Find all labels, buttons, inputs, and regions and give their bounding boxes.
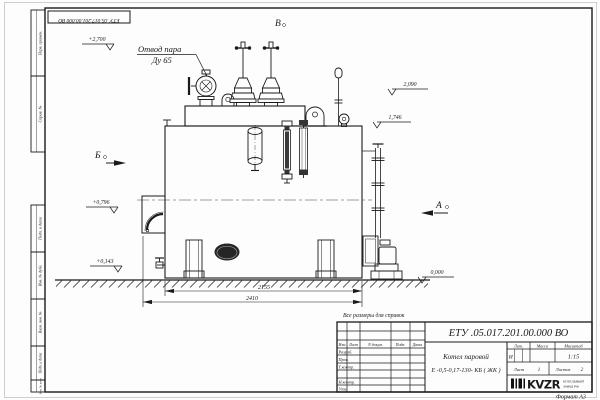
tb-sheet-label: Лист <box>513 367 525 372</box>
eyebolt-ring <box>339 114 349 127</box>
tb-row-tkontr: Т.контр. <box>339 365 355 370</box>
drain-valve-left <box>155 258 165 268</box>
tb-row-razrab: Разраб. <box>338 350 353 355</box>
margin-columns: Перв. примен. Справ. № Подп. и дата Инв.… <box>31 10 45 395</box>
elevation-2700: +2,700 <box>89 37 106 43</box>
tb-row-prov: Пров. <box>338 357 349 362</box>
margin-label-podp-data-bottom: Подп. и дата <box>39 353 43 375</box>
blowdown-standpipe <box>362 144 385 238</box>
kvzr-logo: KVZR КОТЕЛЬНЫЙ ЗАВОД РФ <box>511 378 584 392</box>
elevation-0000: 0,000 <box>430 270 443 276</box>
steam-outlet-valve <box>189 70 216 106</box>
format-note: Формат А3 <box>556 395 586 400</box>
gauge-glass-column <box>299 120 308 178</box>
kvzr-logo-text: KVZR <box>527 378 561 392</box>
elevation-0796: +0,796 <box>93 200 110 206</box>
boiler-drawing: Отвод пара Ду 65 +2,700 2,090 1,746 +0,7… <box>55 19 454 319</box>
callout-line1: Отвод пара <box>138 44 181 54</box>
reference-note: Все размеры для справок <box>343 312 405 319</box>
view-index-mark-left <box>104 156 107 159</box>
boiler-body <box>163 106 362 278</box>
tb-row-nkontr: Н.контр. <box>338 380 356 385</box>
feed-pump-unit <box>363 236 402 279</box>
support-leg-rear <box>316 240 336 278</box>
burner-unit <box>142 196 165 233</box>
view-letter-top: В <box>275 19 281 29</box>
tb-col-podp: Подп. <box>395 342 406 347</box>
view-letter-right: А <box>435 201 442 211</box>
view-index-mark-right <box>446 206 449 209</box>
tb-doc-number: ЕТУ .05.017.201.00.000 ВО <box>448 328 569 339</box>
margin-label-podp-data-top: Подп. и дата <box>38 217 43 241</box>
tb-col-izm: Изм <box>338 342 346 347</box>
margin-label-inv-podl: Инв. № подл. <box>39 377 43 395</box>
elevation-1746: 1,746 <box>388 114 401 121</box>
margin-label-inv-dubl: Инв. № дубл. <box>38 265 43 288</box>
tb-sheets-value: 2 <box>581 368 584 373</box>
steam-outlet-callout: Отвод пара Ду 65 <box>137 44 207 76</box>
dimension-lines: 2155 2410 <box>143 236 362 307</box>
tb-sheets-label: Листов <box>555 367 571 372</box>
support-leg-front <box>184 240 204 278</box>
margin-label-vzam-inv: Взам. инв. № <box>38 311 43 333</box>
tb-massa-label: Масса <box>536 344 549 349</box>
tb-col-ndokum: N докум. <box>367 342 383 347</box>
tb-scale-value: 1:15 <box>568 354 580 361</box>
drawing-sheet: Перв. примен. Справ. № Подп. и дата Инв.… <box>0 0 600 400</box>
margin-label-sprav-no: Справ. № <box>38 105 43 122</box>
tb-col-data: Дата <box>412 342 422 347</box>
kvzr-logo-sub1: КОТЕЛЬНЫЙ <box>562 378 584 384</box>
dimension-2410: 2410 <box>246 295 258 302</box>
ground-line <box>55 280 430 288</box>
callout-line2: Ду 65 <box>151 55 172 65</box>
safety-valve-2 <box>258 42 284 106</box>
view-letter-left: Б <box>94 151 101 161</box>
margin-label-perv-primen: Перв. примен. <box>38 31 43 57</box>
top-stamp-number: ЕТУ .05.017.201.00.000 ВО <box>58 17 120 23</box>
tb-lit-value: И <box>508 355 514 361</box>
elevation-2090: 2,090 <box>403 82 416 88</box>
elevation-0143: +0,143 <box>97 258 114 265</box>
tb-name-line2: Е -0,5-0,17-130- КБ ( ЖК ) <box>430 367 500 374</box>
tb-col-list: Лист <box>348 342 358 347</box>
safety-valve-1 <box>230 42 256 106</box>
tb-lit-label: Лит. <box>513 344 523 349</box>
kvzr-logo-sub2: ЗАВОД РФ <box>563 385 579 389</box>
tb-name-line1: Котел паровой <box>442 353 489 361</box>
top-stamp: ЕТУ .05.017.201.00.000 ВО <box>48 11 130 23</box>
view-index-mark-top <box>283 24 286 27</box>
manhole <box>215 244 240 261</box>
tb-row-utv: Утв. <box>339 387 348 392</box>
title-block: Изм Лист N докум. Подп. Дата Разраб. Про… <box>337 322 592 392</box>
tb-masshtab-label: Масштаб <box>563 344 583 349</box>
tb-sheet-value: 1 <box>538 368 541 373</box>
elevation-marks: +2,700 2,090 1,746 +0,796 +0,143 0,000 <box>82 37 454 283</box>
sample-cooler-cylinder <box>248 125 262 171</box>
water-level-gauge <box>282 121 292 183</box>
dimension-2155: 2155 <box>258 285 270 291</box>
level-probe <box>335 68 343 126</box>
